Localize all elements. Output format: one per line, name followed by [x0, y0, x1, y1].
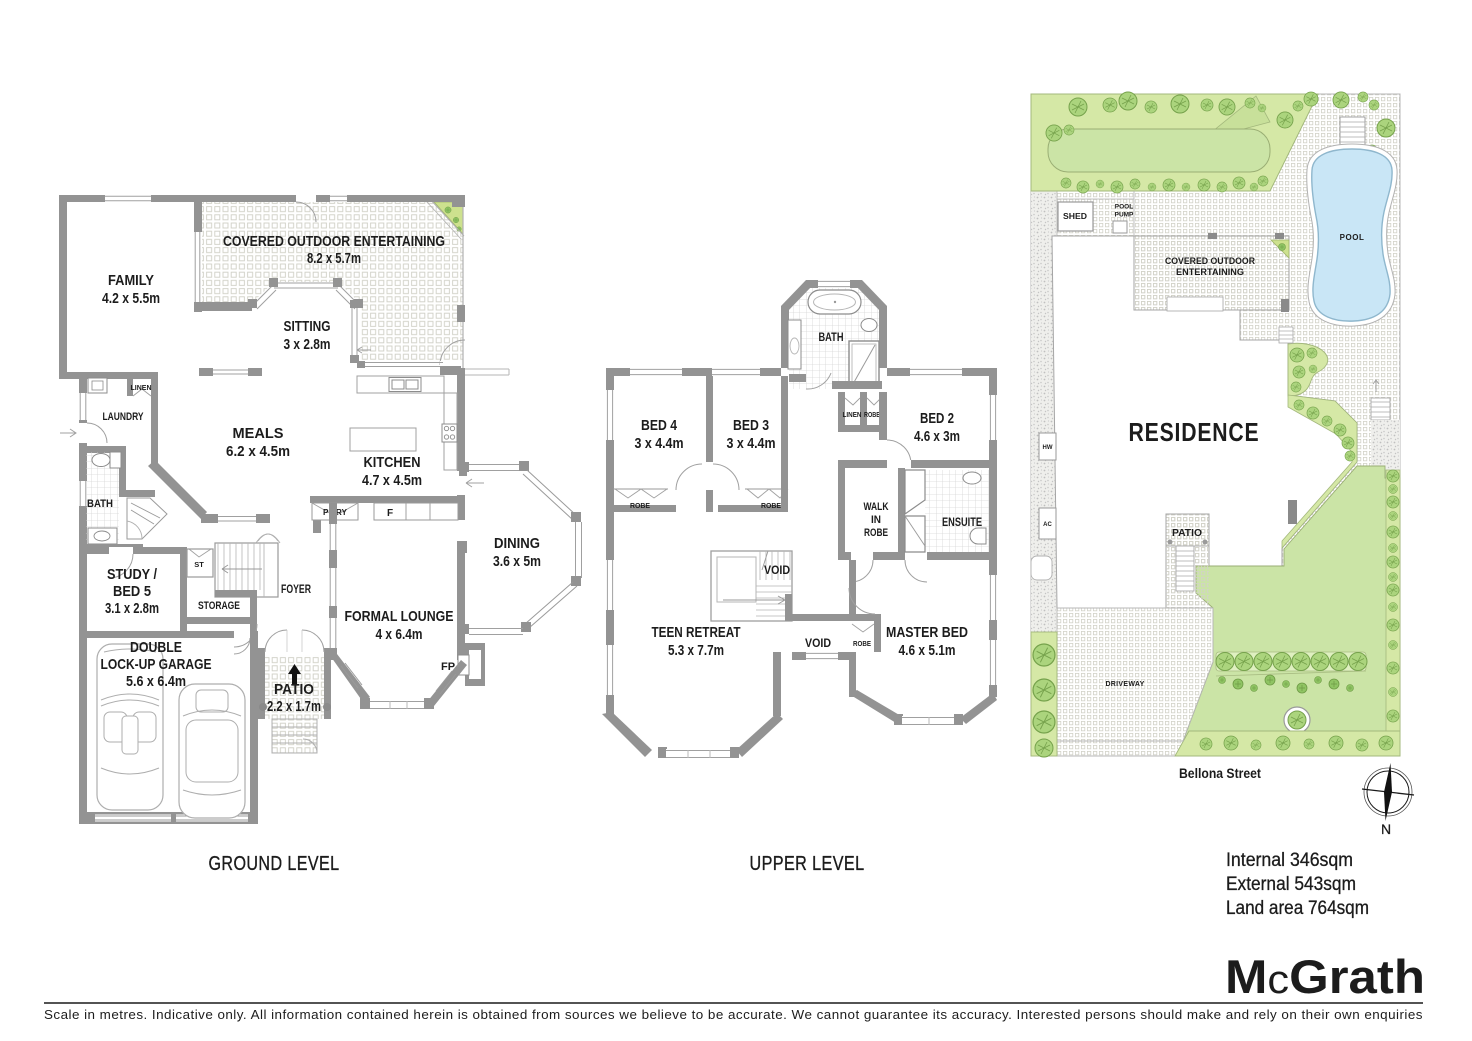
svg-text:BED 2: BED 2 — [920, 410, 954, 427]
svg-text:F: F — [387, 508, 393, 519]
svg-text:ENTERTAINING: ENTERTAINING — [1176, 267, 1244, 277]
svg-text:HW: HW — [1043, 445, 1053, 451]
svg-text:AC: AC — [1043, 522, 1052, 528]
svg-text:UPPER LEVEL: UPPER LEVEL — [750, 853, 865, 875]
svg-text:ROBE: ROBE — [630, 501, 650, 510]
svg-text:TEEN RETREAT: TEEN RETREAT — [652, 624, 741, 641]
svg-text:IN: IN — [871, 514, 881, 526]
svg-text:POOL: POOL — [1340, 233, 1365, 242]
svg-text:3.6 x 5m: 3.6 x 5m — [493, 553, 541, 570]
svg-text:4.6 x 3m: 4.6 x 3m — [914, 428, 960, 445]
svg-text:LAUNDRY: LAUNDRY — [103, 411, 145, 423]
svg-text:Bellona Street: Bellona Street — [1179, 765, 1261, 781]
svg-text:KITCHEN: KITCHEN — [364, 454, 421, 471]
svg-text:ROBE: ROBE — [864, 527, 888, 539]
svg-text:BATH: BATH — [87, 498, 113, 510]
svg-text:PATIO: PATIO — [1172, 528, 1202, 539]
svg-text:PUMP: PUMP — [1115, 212, 1134, 219]
svg-text:4.2 x 5.5m: 4.2 x 5.5m — [102, 290, 160, 307]
svg-text:N: N — [1381, 821, 1391, 837]
svg-text:LINEN: LINEN — [843, 412, 862, 419]
svg-text:ROBE: ROBE — [853, 641, 871, 648]
svg-text:4.7 x 4.5m: 4.7 x 4.5m — [362, 472, 422, 489]
svg-text:COVERED OUTDOOR ENTERTAINING: COVERED OUTDOOR ENTERTAINING — [223, 233, 445, 250]
svg-text:2.2 x 1.7m: 2.2 x 1.7m — [267, 698, 321, 715]
svg-text:COVERED OUTDOOR: COVERED OUTDOOR — [1165, 256, 1255, 266]
svg-text:FAMILY: FAMILY — [108, 272, 154, 289]
svg-text:POOL: POOL — [1115, 204, 1133, 211]
svg-text:8.2 x 5.7m: 8.2 x 5.7m — [307, 250, 361, 267]
svg-text:STUDY /: STUDY / — [107, 566, 158, 583]
svg-text:FORMAL LOUNGE: FORMAL LOUNGE — [345, 608, 454, 625]
svg-text:STORAGE: STORAGE — [198, 600, 240, 612]
svg-text:VOID: VOID — [805, 638, 831, 650]
svg-text:BED 4: BED 4 — [641, 417, 678, 434]
svg-text:5.3 x 7.7m: 5.3 x 7.7m — [668, 642, 724, 659]
svg-text:FP: FP — [441, 661, 455, 673]
svg-text:3 x 4.4m: 3 x 4.4m — [727, 435, 776, 452]
svg-text:6.2 x 4.5m: 6.2 x 4.5m — [226, 443, 290, 460]
svg-text:McGrath: McGrath — [1225, 950, 1425, 1003]
svg-text:PATIO: PATIO — [274, 681, 314, 698]
svg-text:BED 3: BED 3 — [733, 417, 769, 434]
svg-text:4.6 x 5.1m: 4.6 x 5.1m — [899, 642, 956, 659]
svg-text:ST: ST — [194, 560, 204, 569]
svg-text:VOID: VOID — [764, 565, 790, 577]
svg-text:FOYER: FOYER — [281, 584, 312, 596]
svg-text:Land area 764sqm: Land area 764sqm — [1226, 898, 1369, 919]
svg-text:4 x 6.4m: 4 x 6.4m — [376, 626, 423, 643]
svg-text:LOCK-UP GARAGE: LOCK-UP GARAGE — [101, 656, 212, 673]
svg-text:Internal 346sqm: Internal 346sqm — [1226, 850, 1353, 871]
svg-text:DOUBLE: DOUBLE — [130, 639, 182, 656]
svg-text:ROBE: ROBE — [864, 412, 880, 419]
svg-text:ENSUITE: ENSUITE — [942, 517, 982, 529]
svg-text:External 543sqm: External 543sqm — [1226, 874, 1356, 895]
svg-text:ROBE: ROBE — [761, 501, 781, 510]
svg-text:MEALS: MEALS — [233, 425, 284, 442]
svg-text:WALK: WALK — [864, 501, 889, 513]
svg-text:DINING: DINING — [494, 535, 540, 552]
svg-text:3.1 x 2.8m: 3.1 x 2.8m — [105, 600, 159, 617]
svg-text:LINEN: LINEN — [131, 383, 152, 392]
svg-text:5.6 x 6.4m: 5.6 x 6.4m — [126, 673, 186, 690]
svg-text:3 x 4.4m: 3 x 4.4m — [635, 435, 684, 452]
svg-text:SHED: SHED — [1063, 212, 1087, 221]
svg-text:RESIDENCE: RESIDENCE — [1129, 417, 1260, 447]
svg-text:Scale in metres. Indicative on: Scale in metres. Indicative only. All in… — [44, 1007, 1423, 1022]
svg-text:SITTING: SITTING — [284, 318, 331, 335]
svg-text:MASTER BED: MASTER BED — [886, 624, 968, 641]
svg-text:DRIVEWAY: DRIVEWAY — [1105, 681, 1144, 688]
svg-text:GROUND LEVEL: GROUND LEVEL — [209, 853, 340, 875]
svg-text:BED 5: BED 5 — [113, 583, 151, 600]
svg-text:BATH: BATH — [819, 332, 844, 344]
svg-text:3 x 2.8m: 3 x 2.8m — [284, 336, 331, 353]
